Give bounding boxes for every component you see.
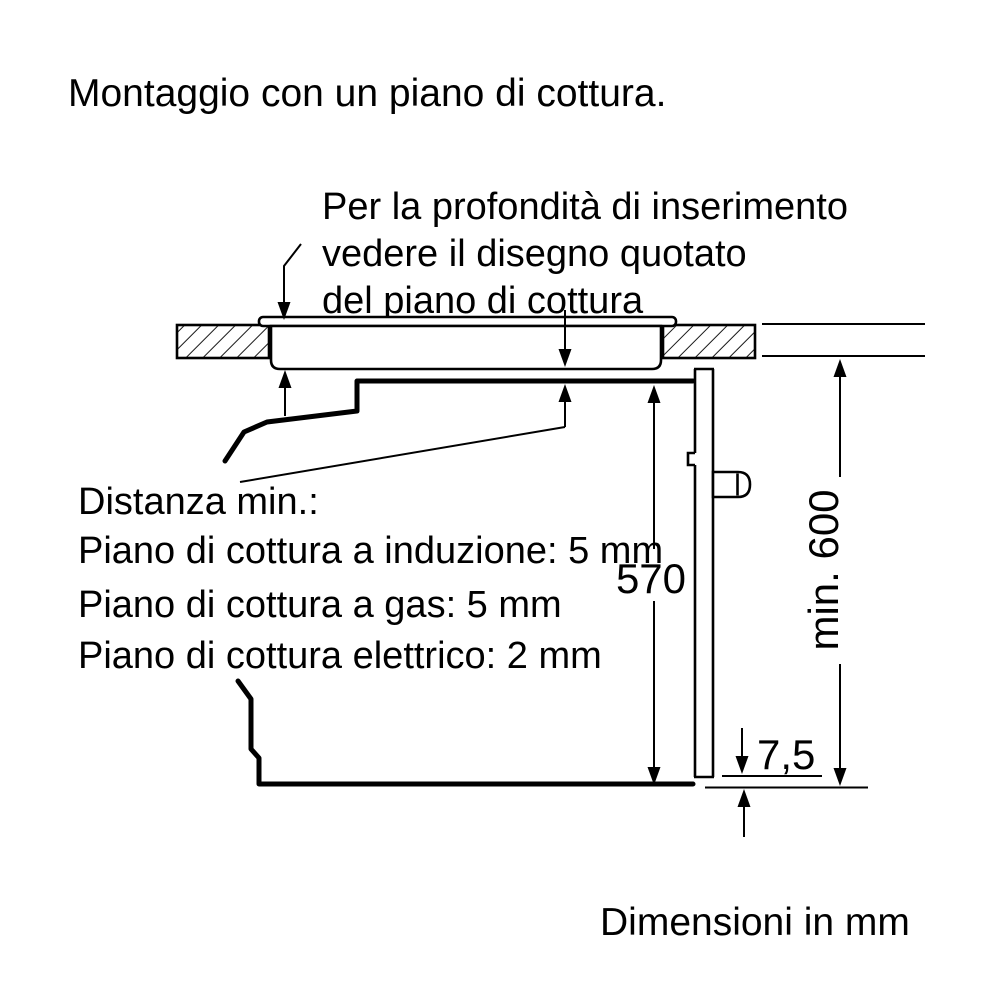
- down-arrow-icon: [834, 768, 847, 786]
- dimension-570: 570: [616, 385, 686, 785]
- up-arrow-icon: [834, 359, 847, 377]
- min-distance-electric: Piano di cottura elettrico: 2 mm: [78, 635, 602, 677]
- dim-min-600-label: min. 600: [800, 489, 847, 650]
- down-arrow-icon: [736, 756, 749, 774]
- units-note: Dimensioni in mm: [600, 901, 910, 944]
- note-line-2: vedere il disegno quotato: [322, 233, 747, 275]
- worktop-left-hatch: [177, 325, 269, 358]
- oven-bottom-break-line: [238, 681, 693, 784]
- min-distance-gas: Piano di cottura a gas: 5 mm: [78, 584, 562, 626]
- min-distance-heading: Distanza min.:: [78, 481, 319, 523]
- up-arrow-icon: [279, 370, 292, 388]
- note-line-1: Per la profondità di inserimento: [322, 186, 848, 228]
- oven-knob: [713, 472, 750, 497]
- cooktop-flange: [259, 317, 676, 326]
- control-panel-seam: [688, 453, 695, 465]
- min-distance-list: Distanza min.: Piano di cottura a induzi…: [78, 481, 663, 677]
- oven-installation-diagram: Montaggio con un piano di cottura. Per l…: [0, 0, 1000, 1000]
- oven-top-break-line: [225, 381, 693, 461]
- min-distance-induction: Piano di cottura a induzione: 5 mm: [78, 530, 663, 572]
- page-title: Montaggio con un piano di cottura.: [68, 72, 666, 115]
- worktop-right-extension: [762, 324, 925, 356]
- dimension-min-600: min. 600: [800, 359, 847, 786]
- cooktop-tub: [271, 326, 661, 369]
- installation-diagram-page: Montaggio con un piano di cottura. Per l…: [0, 0, 1000, 1000]
- insertion-depth-note: Per la profondità di inserimento vedere …: [322, 186, 848, 322]
- dimension-7-5: 7,5: [736, 728, 816, 837]
- up-arrow-icon: [738, 789, 751, 807]
- oven-front-frame: [688, 369, 714, 777]
- up-arrow-icon: [648, 385, 661, 403]
- min-distance-leader-line: [240, 427, 565, 482]
- dim-7-5-label: 7,5: [757, 731, 815, 778]
- up-arrow-icon: [559, 384, 572, 402]
- worktop-right-hatch: [663, 325, 755, 358]
- cooktop: [259, 317, 676, 369]
